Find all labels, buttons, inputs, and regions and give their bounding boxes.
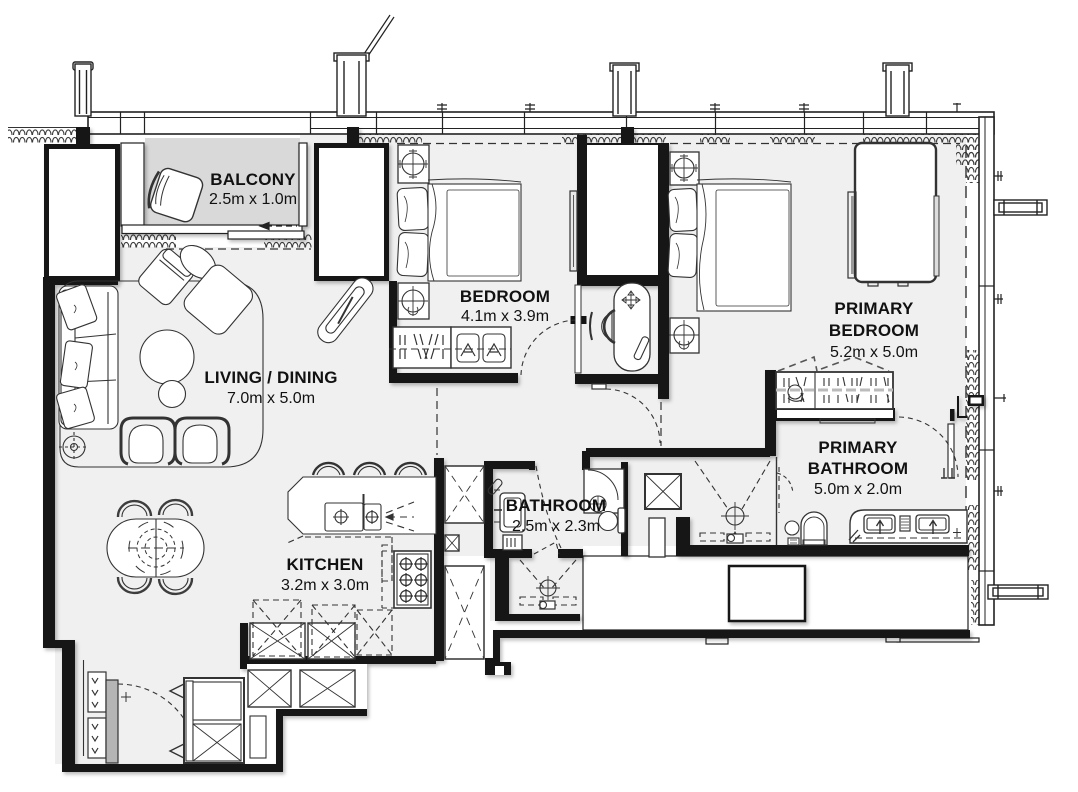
- svg-text:PRIMARY: PRIMARY: [834, 299, 914, 318]
- svg-text:7.0m x 5.0m: 7.0m x 5.0m: [227, 390, 315, 407]
- svg-text:5.0m x 2.0m: 5.0m x 2.0m: [814, 481, 902, 498]
- svg-text:3.2m x 3.0m: 3.2m x 3.0m: [281, 577, 369, 594]
- svg-text:LIVING / DINING: LIVING / DINING: [204, 368, 337, 387]
- svg-text:BATHROOM: BATHROOM: [506, 496, 606, 515]
- svg-text:BALCONY: BALCONY: [210, 170, 296, 189]
- svg-text:5.2m x 5.0m: 5.2m x 5.0m: [830, 344, 918, 361]
- svg-text:BATHROOM: BATHROOM: [808, 459, 908, 478]
- svg-text:KITCHEN: KITCHEN: [287, 555, 364, 574]
- svg-text:4.1m x 3.9m: 4.1m x 3.9m: [461, 308, 549, 325]
- svg-text:2.5m x 1.0m: 2.5m x 1.0m: [209, 191, 297, 208]
- svg-text:PRIMARY: PRIMARY: [818, 438, 898, 457]
- svg-text:BEDROOM: BEDROOM: [829, 321, 919, 340]
- svg-text:BEDROOM: BEDROOM: [460, 287, 550, 306]
- svg-text:2.5m x 2.3m: 2.5m x 2.3m: [512, 518, 600, 535]
